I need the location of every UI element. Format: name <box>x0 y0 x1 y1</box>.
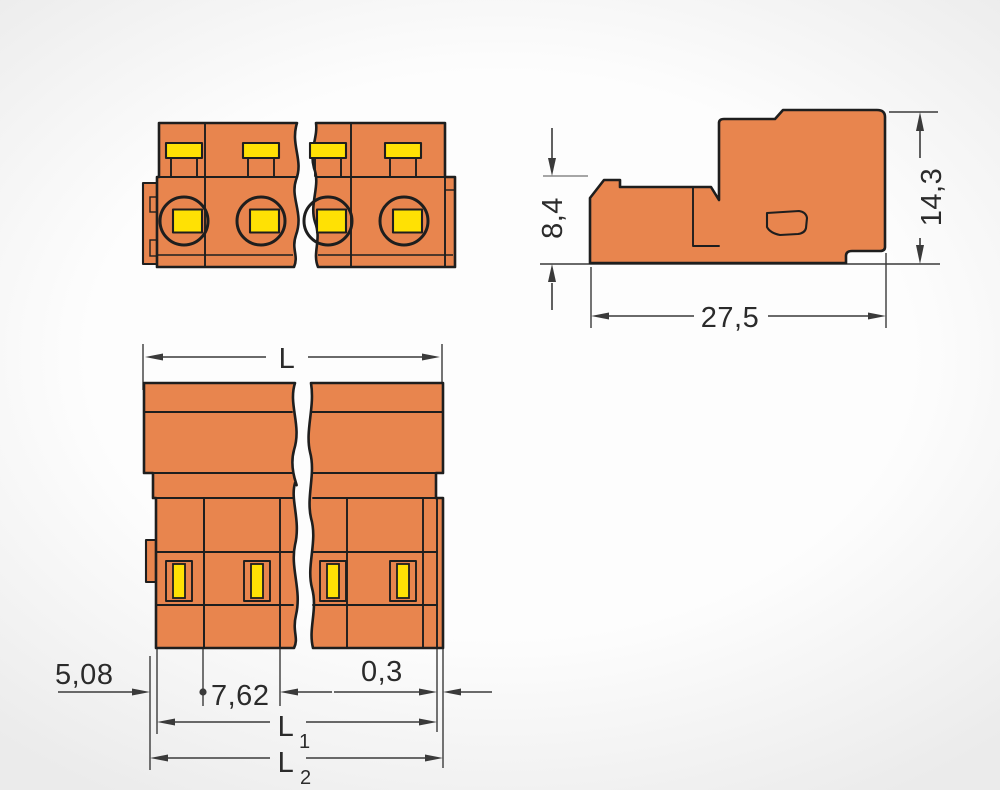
dim-7-62-dot <box>199 688 206 695</box>
connector-dimensional-drawing: 8,4 14,3 27,5 L <box>0 0 1000 790</box>
side-profile <box>590 110 885 263</box>
dim-14-3: 14,3 <box>889 112 948 264</box>
dim-7-62-label: 7,62 <box>211 680 269 712</box>
dim-8-4: 8,4 <box>537 128 588 310</box>
drawing-canvas: 8,4 14,3 27,5 L <box>0 0 1000 790</box>
dim-L1-subscript: 1 <box>299 731 311 753</box>
dim-14-3-arrow-down <box>916 245 924 264</box>
dim-8-4-arrow-down <box>548 158 556 176</box>
dim-0-3-arrow-left <box>443 689 461 696</box>
dim-14-3-arrow-up <box>916 112 924 131</box>
dim-L-arrow-right <box>422 354 440 361</box>
dim-27-5-arrow-left <box>591 313 609 320</box>
dim-8-4-label: 8,4 <box>537 197 569 239</box>
dim-27-5: 27,5 <box>591 253 886 334</box>
side-view: 8,4 14,3 27,5 <box>537 110 948 334</box>
dim-L1-arrow-right <box>419 719 437 726</box>
front-view <box>143 123 455 267</box>
dim-L2-arrow-right <box>425 755 443 762</box>
dim-27-5-arrow-right <box>868 313 886 320</box>
dim-27-5-label: 27,5 <box>701 302 759 334</box>
dim-7-62-arrow <box>280 689 298 696</box>
dim-L2: L 2 <box>150 747 443 789</box>
dim-0-3-arrow-right <box>419 689 437 696</box>
dim-7-62: 7,62 <box>199 680 332 712</box>
dim-L1-arrow-left <box>157 719 175 726</box>
dim-L2-arrow-left <box>150 755 168 762</box>
dim-5-08-label: 5,08 <box>55 659 113 691</box>
dim-L-arrow-left <box>145 354 163 361</box>
dim-L1: L 1 <box>157 711 437 753</box>
dim-0-3-label: 0,3 <box>361 656 403 688</box>
dim-L1-label: L <box>278 711 295 743</box>
dim-L-label: L <box>279 343 296 375</box>
dim-14-3-label: 14,3 <box>916 168 948 226</box>
bottom-left-half <box>144 383 298 648</box>
dim-5-08-arrow <box>132 689 150 696</box>
dim-0-3: 0,3 <box>334 656 492 696</box>
bottom-view: L 5,08 <box>55 343 492 789</box>
dim-8-4-arrow-up <box>548 264 556 282</box>
dim-L2-label: L <box>278 747 295 779</box>
bottom-side-tab <box>146 540 156 582</box>
dim-L2-subscript: 2 <box>300 767 312 789</box>
dim-5-08: 5,08 <box>55 659 150 696</box>
